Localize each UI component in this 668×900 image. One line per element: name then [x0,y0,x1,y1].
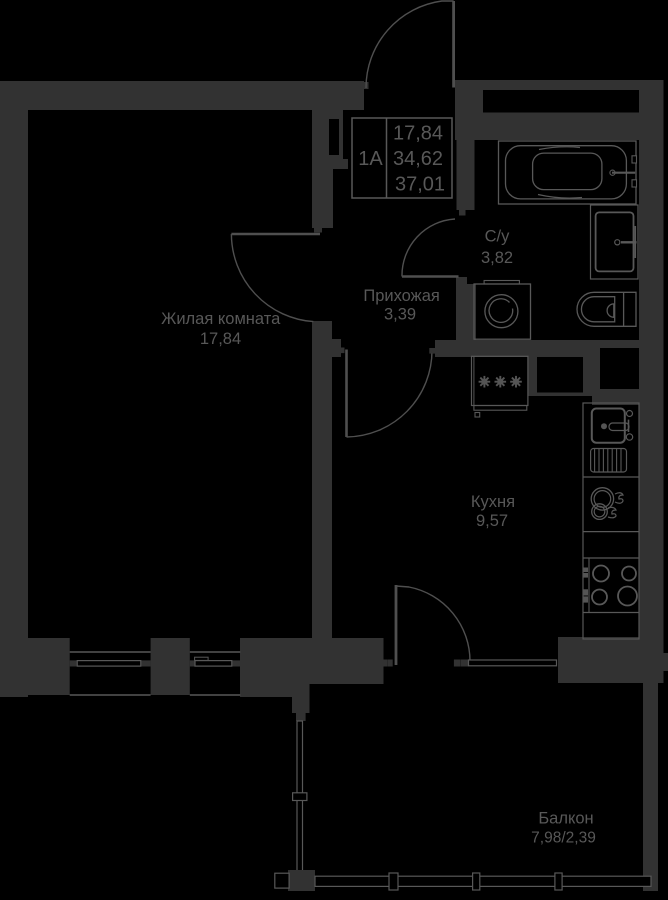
svg-text:17,84: 17,84 [200,330,241,348]
svg-text:С/у: С/у [485,228,511,246]
svg-text:37,01: 37,01 [395,174,445,196]
svg-text:Жилая комната: Жилая комната [161,310,281,328]
svg-text:1A: 1A [358,148,383,170]
svg-text:7,98/2,39: 7,98/2,39 [531,830,596,847]
svg-text:17,84: 17,84 [393,123,443,145]
svg-text:3,82: 3,82 [481,249,513,267]
svg-text:Прихожая: Прихожая [363,287,439,305]
svg-text:Кухня: Кухня [471,493,515,511]
svg-text:9,57: 9,57 [476,512,508,530]
svg-text:Балкон: Балкон [538,810,593,828]
svg-text:3,39: 3,39 [384,306,416,324]
svg-text:34,62: 34,62 [393,148,443,170]
